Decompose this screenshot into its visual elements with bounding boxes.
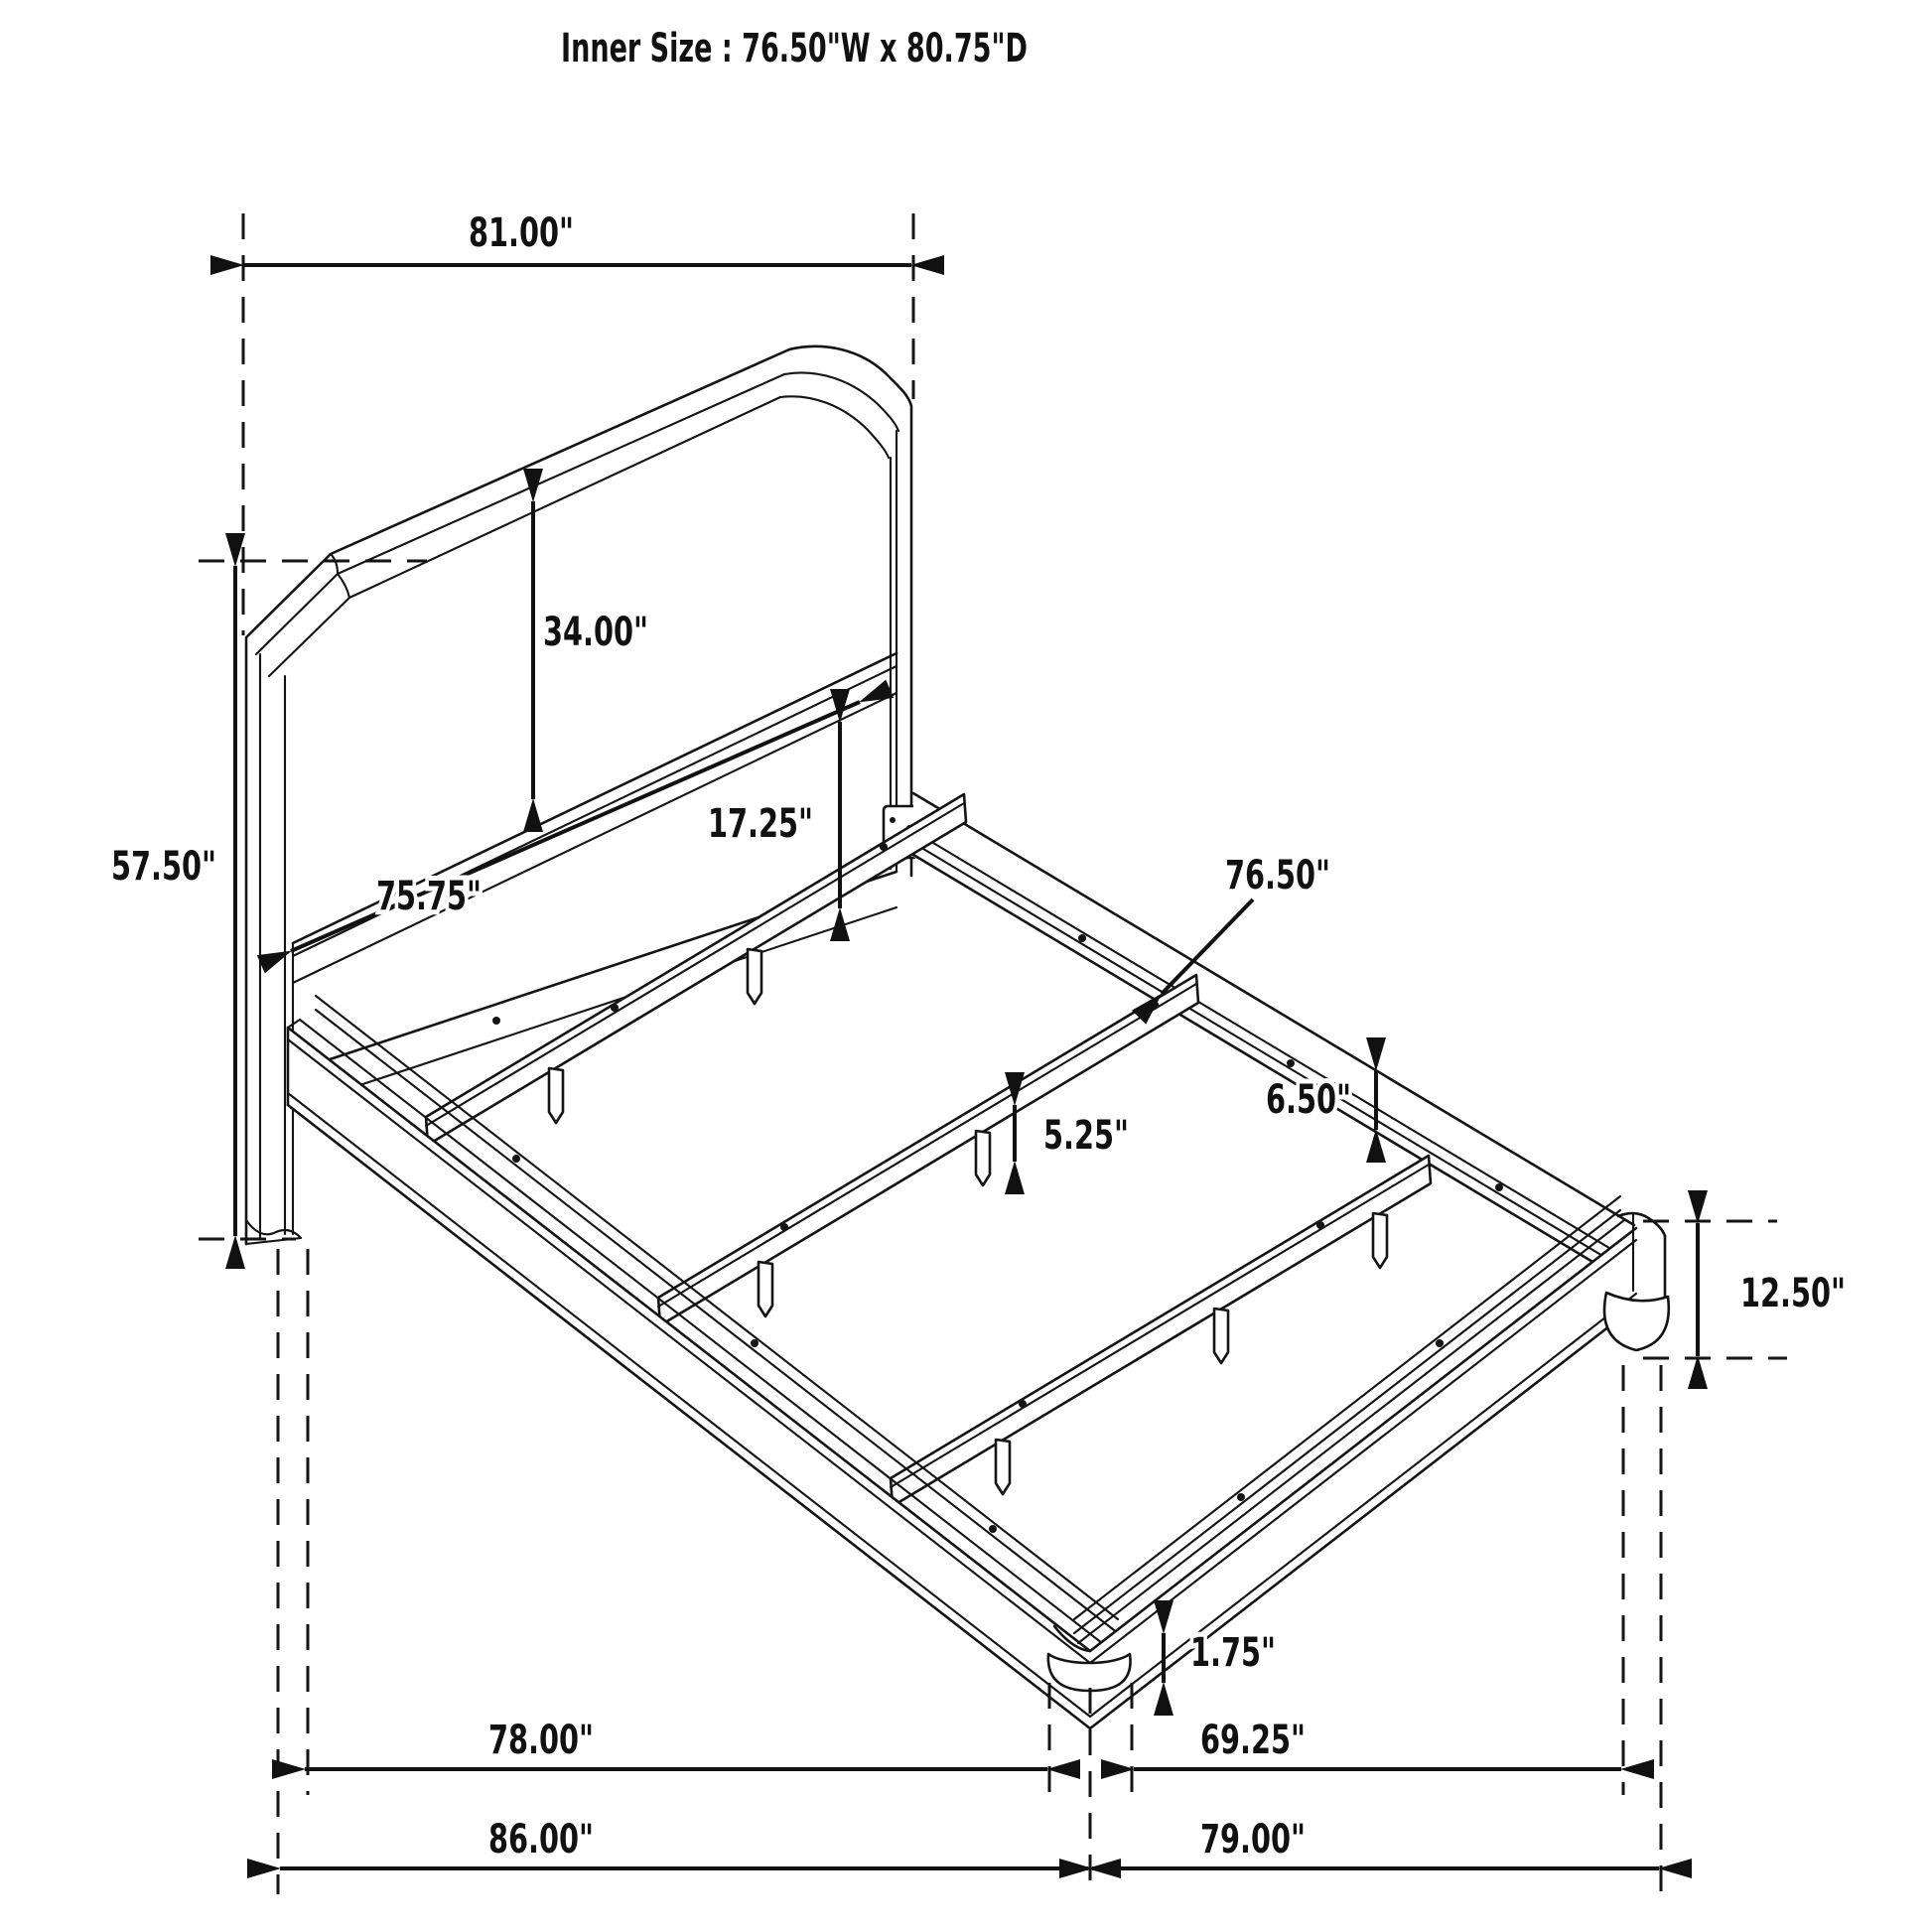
dimension-label: 78.00" xyxy=(488,1718,594,1763)
bed-frame-dimension-diagram: 81.00" 57.50" 34.00" 17.25" 75.75" 76.50… xyxy=(0,0,1932,1932)
dimension-label: 1.75" xyxy=(1190,1630,1276,1676)
foot-rail xyxy=(1074,1196,1636,1728)
dimension-label: 81.00" xyxy=(469,210,574,256)
dimension-label: 6.50" xyxy=(1266,1077,1351,1123)
slat-leg xyxy=(549,1068,563,1123)
slat-leg xyxy=(759,1262,772,1316)
dimension-label: 86.00" xyxy=(488,1817,594,1863)
slat-leg xyxy=(996,1440,1010,1494)
dimension-label: 34.00" xyxy=(543,610,648,655)
dimension-label: 79.00" xyxy=(1200,1817,1306,1863)
dimension-label: 57.50" xyxy=(111,844,216,890)
slat-leg xyxy=(1214,1309,1228,1363)
page-title: Inner Size : 76.50"W x 80.75"D xyxy=(561,26,1028,71)
dimension-label: 12.50" xyxy=(1740,1271,1846,1316)
dim-footboard-height: 12.50" xyxy=(1643,1221,1846,1358)
dimension-label: 17.25" xyxy=(708,801,813,847)
dim-slat-leg-height: 5.25" xyxy=(1015,1105,1129,1162)
slat-leg xyxy=(976,1131,990,1185)
corner-foot xyxy=(1604,1293,1669,1350)
diagram-canvas: 81.00" 57.50" 34.00" 17.25" 75.75" 76.50… xyxy=(0,0,1932,1932)
slat-leg xyxy=(1373,1213,1387,1268)
dimension-label: 75.75" xyxy=(376,874,482,919)
dimension-label: 76.50" xyxy=(1225,853,1330,898)
slat-leg xyxy=(748,949,761,1004)
dimension-label: 5.25" xyxy=(1043,1113,1129,1159)
dimension-label: 69.25" xyxy=(1200,1718,1306,1763)
